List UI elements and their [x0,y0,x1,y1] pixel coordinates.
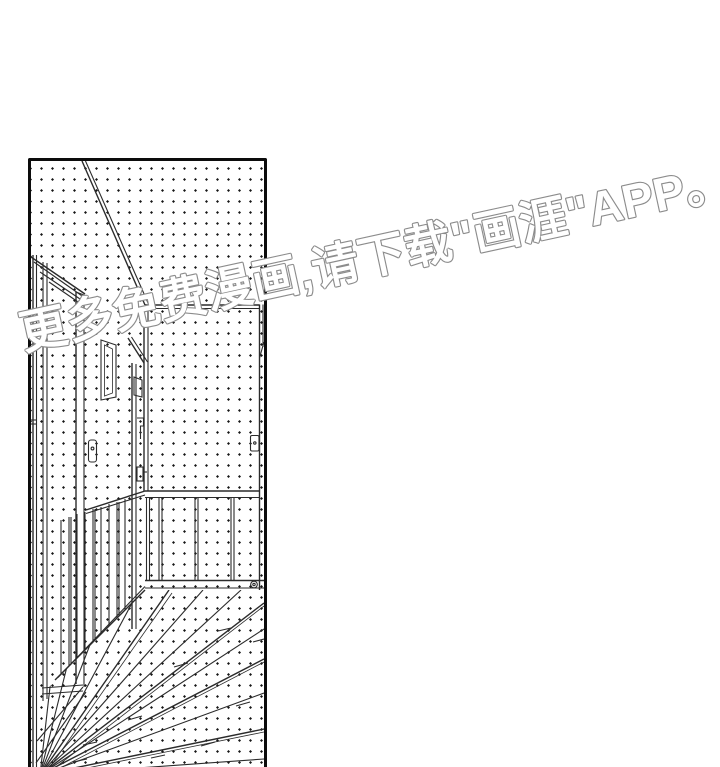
wainscoting [86,491,264,588]
door-stopper [251,581,258,588]
door-window [101,340,116,400]
door-latch [137,418,147,481]
wall-slats [61,499,125,674]
door-handle [89,440,97,462]
ceiling-lines [82,161,260,309]
panel-artwork [31,161,264,767]
comic-page: 更多免费漫画,请下载"画涯"APP。 [0,0,720,767]
light-switch [251,436,260,452]
right-wall [251,305,265,591]
floor-planks [36,590,264,767]
comic-panel [28,158,267,767]
door-window-small [134,377,142,397]
left-doorway [31,255,116,767]
